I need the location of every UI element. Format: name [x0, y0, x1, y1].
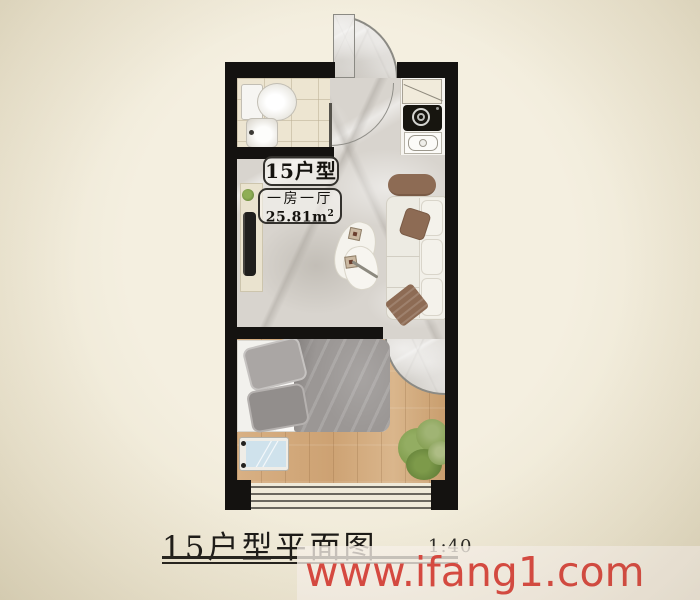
table-decor — [348, 227, 362, 241]
floorplan-image: 15户型 一房一厅 25.81m2 15户型平面图 1:40 www.ifang… — [0, 0, 700, 600]
kitchen-cabinet — [402, 79, 442, 104]
bathroom-sink — [246, 118, 278, 148]
entry-door-leaf — [333, 14, 355, 78]
cooktop-knob — [436, 107, 439, 110]
small-plant — [242, 189, 254, 201]
wall-segment — [225, 480, 251, 510]
wall-segment — [225, 62, 237, 510]
window-glazing-lines — [250, 486, 431, 509]
wall-segment — [445, 62, 458, 483]
sofa-cushion — [421, 239, 443, 275]
unit-label: 15户型 — [263, 156, 339, 186]
unit-info-label: 一房一厅 25.81m2 — [258, 188, 342, 224]
bedroom-tv-screen — [246, 441, 286, 467]
sofa-bolster-pillow — [388, 174, 436, 196]
toilet — [257, 83, 297, 121]
wall-segment — [225, 62, 335, 78]
layout-label: 一房一厅 — [260, 192, 340, 207]
watermark-text: www.ifang1.com — [305, 548, 645, 596]
tv-stand-knob — [241, 463, 246, 468]
area-label: 25.81m2 — [260, 207, 340, 226]
wall-segment — [329, 103, 332, 147]
wall-segment — [237, 327, 383, 339]
television — [243, 212, 256, 276]
wall-segment — [431, 480, 458, 510]
kitchen-sink-drain — [419, 139, 427, 147]
sofa-seam — [386, 256, 420, 257]
tv-stand-knob — [241, 441, 246, 446]
